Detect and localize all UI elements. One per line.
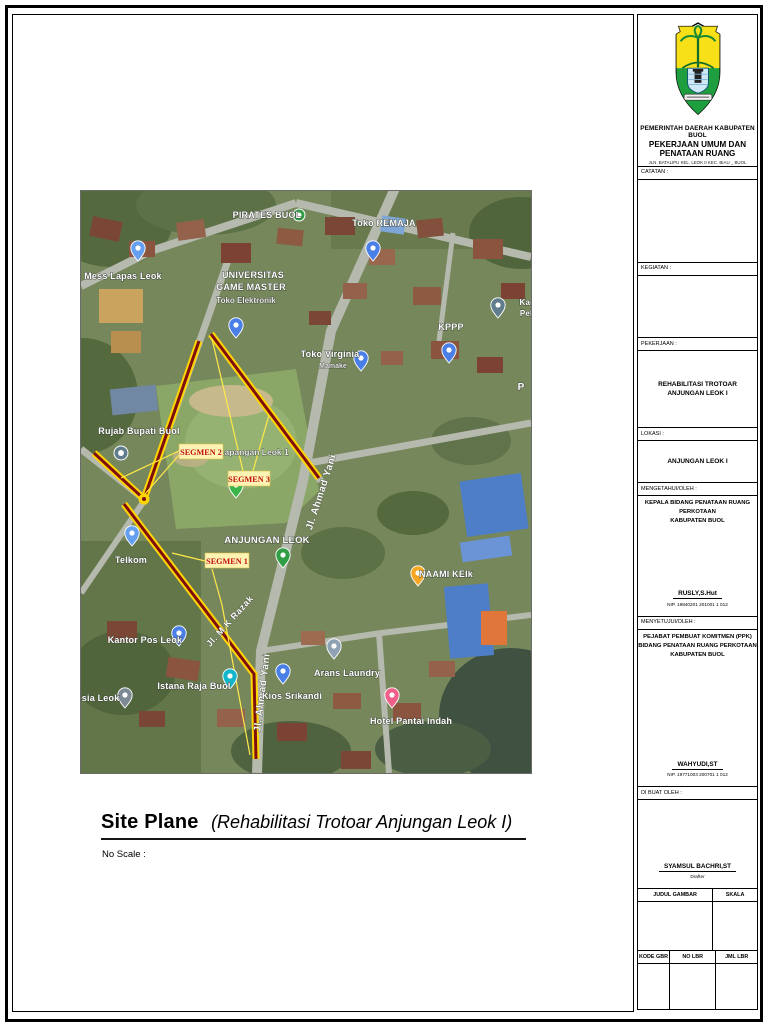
- agency-name-line1: PEMERINTAH DAERAH KABUPATEN BUOL: [638, 125, 757, 139]
- segmen-3-label: SEGMEN 3: [228, 475, 270, 484]
- map-label-game-master: GAME MASTER: [216, 282, 286, 292]
- judul-gambar-cell: [638, 902, 712, 950]
- pekerjaan-value: REHABILITASI TROTOAR ANJUNGAN LEOK I: [638, 351, 757, 427]
- map-label-hotel-pantai-indah: Hotel Pantai Indah: [370, 716, 452, 726]
- map-label-esia-leok: esia Leok: [81, 693, 120, 703]
- catatan-section: CATATAN :: [638, 167, 757, 263]
- mengetahui-nip: NIP. 19840201 201001 1 012: [638, 602, 757, 607]
- judul-gambar-header: JUDUL GAMBAR: [638, 889, 712, 901]
- map-label-telkom: Telkom: [115, 555, 147, 565]
- skala-header: SKALA: [712, 889, 757, 901]
- segmen-1-label: SEGMEN 1: [206, 557, 248, 566]
- map-label-rujab-bupati-buol: Rujab Bupati Buol: [98, 426, 179, 436]
- no-lbr-header: NO LBR: [669, 951, 715, 963]
- satellite-map-image: Jl. Ahmad YaniJl. Ahmad YaniJl. M K Raza…: [81, 191, 531, 773]
- rujab-bupati-buol-marker-icon: [114, 446, 128, 460]
- pekerjaan-section: PEKERJAAN : REHABILITASI TROTOAR ANJUNGA…: [638, 338, 757, 428]
- agency-address: JLN. BATALIPU KEL. LEOK II KEC. BIAU _ B…: [638, 160, 757, 165]
- menyetujui-label: MENYETUJUI/OLEH :: [638, 617, 757, 630]
- pekerjaan-label: PEKERJAAN :: [638, 338, 757, 351]
- map-label-universitas: UNIVERSITAS: [222, 270, 284, 280]
- map-label-p-partial: P: [518, 382, 525, 393]
- mengetahui-section: MENGETAHUI/OLEH : KEPALA BIDANG PENATAAN…: [638, 483, 757, 617]
- map-label-lapangan-leok-1: Lapangan Leok 1: [219, 447, 289, 457]
- kode-gbr-header: KODE GBR: [638, 951, 669, 963]
- map-label-pirates-buol: PIRATES BUOL: [233, 210, 302, 220]
- lokasi-value: ANJUNGAN LEOK I: [638, 441, 757, 482]
- menyetujui-role: PEJABAT PEMBUAT KOMITMEN (PPK) BIDANG PE…: [638, 630, 757, 660]
- map-label-toko-virginia-sub: Mamake: [319, 363, 347, 370]
- map-label-kantor-pos-leok: Kantor Pos Leok: [108, 635, 183, 645]
- menyetujui-section: MENYETUJUI/OLEH : PEJABAT PEMBUAT KOMITM…: [638, 617, 757, 788]
- title-block: PEMERINTAH DAERAH KABUPATEN BUOL PEKERJA…: [637, 14, 758, 1010]
- agency-name-line2: PEKERJAAN UMUM DAN PENATAAN RUANG: [638, 140, 757, 158]
- map-label-toko-virginia: Toko Virginia: [301, 349, 361, 359]
- caption-subtitle: (Rehabilitasi Trotoar Anjungan Leok I): [211, 812, 512, 832]
- dibuat-name: SYAMSUL BACHRI,ST: [659, 863, 736, 872]
- mengetahui-label: MENGETAHUI/OLEH :: [638, 483, 757, 496]
- kegiatan-section: KEGIATAN :: [638, 263, 757, 339]
- jml-lbr-cell: [715, 964, 757, 1009]
- caption-title: Site Plane: [101, 811, 199, 833]
- map-label-arans-laundry: Arans Laundry: [314, 668, 380, 678]
- no-lbr-cell: [669, 964, 715, 1009]
- map-label-mess-lapas-leok: Mess Lapas Leok: [84, 271, 162, 281]
- buol-regency-crest-icon: [672, 20, 724, 118]
- jml-lbr-header: JML LBR: [715, 951, 757, 963]
- dibuat-label: DI BUAT OLEH :: [638, 787, 757, 800]
- map-label-naami-keik: NAAMI KEIk: [419, 569, 474, 579]
- segmen-2-label: SEGMEN 2: [180, 448, 222, 457]
- map-label-kppp: KPPP: [438, 322, 463, 332]
- drawing-caption: Site Plane (Rehabilitasi Trotoar Anjunga…: [101, 811, 526, 840]
- scale-note: No Scale :: [102, 849, 146, 860]
- mengetahui-signature: RUSLY,S.Hut NIP. 19840201 201001 1 012: [638, 582, 757, 607]
- judul-gambar-row: JUDUL GAMBAR SKALA: [638, 889, 757, 951]
- kode-gbr-cell: [638, 964, 669, 1009]
- drawing-sheet: Jl. Ahmad YaniJl. Ahmad YaniJl. M K Raza…: [0, 0, 768, 1024]
- menyetujui-name: WAHYUDI,ST: [672, 761, 722, 770]
- menyetujui-nip: NIP. 19771003 200701 1 012: [638, 772, 757, 777]
- dibuat-role: Drafter: [638, 874, 757, 879]
- map-label-kios-srikandi: Kios Srikandi: [262, 691, 322, 701]
- catatan-label: CATATAN :: [638, 167, 757, 180]
- skala-cell: [712, 902, 757, 950]
- site-map: Jl. Ahmad YaniJl. Ahmad YaniJl. M K Raza…: [81, 191, 531, 773]
- main-drawing-panel: Jl. Ahmad YaniJl. Ahmad YaniJl. M K Raza…: [12, 14, 634, 1012]
- dibuat-section: DI BUAT OLEH : SYAMSUL BACHRI,ST Drafter: [638, 787, 757, 889]
- lokasi-section: LOKASI : ANJUNGAN LEOK I: [638, 428, 757, 483]
- map-label-kantor-pelab-1: Kantor: [520, 298, 531, 307]
- map-label-toko-elektronik: Toko Elektronik: [216, 296, 276, 305]
- catatan-content: [638, 180, 757, 262]
- kode-gbr-row: KODE GBR NO LBR JML LBR: [638, 951, 757, 1009]
- lokasi-label: LOKASI :: [638, 428, 757, 441]
- kegiatan-content: [638, 276, 757, 338]
- title-block-header: PEMERINTAH DAERAH KABUPATEN BUOL PEKERJA…: [638, 15, 757, 167]
- mengetahui-name: RUSLY,S.Hut: [673, 590, 722, 599]
- map-label-istana-raja-buol: Istana Raja Buol: [157, 681, 230, 691]
- map-label-anjungan-leok: ANJUNGAN LEOK: [224, 535, 309, 546]
- mengetahui-role: KEPALA BIDANG PENATAAN RUANG PERKOTAAN K…: [638, 496, 757, 526]
- menyetujui-signature: WAHYUDI,ST NIP. 19771003 200701 1 012: [638, 753, 757, 778]
- map-label-toko-remaja: Toko REMAJA: [352, 218, 416, 228]
- kegiatan-label: KEGIATAN :: [638, 263, 757, 276]
- dibuat-signature: SYAMSUL BACHRI,ST Drafter: [638, 855, 757, 879]
- map-label-kantor-pelab-2: Pelab: [520, 309, 531, 318]
